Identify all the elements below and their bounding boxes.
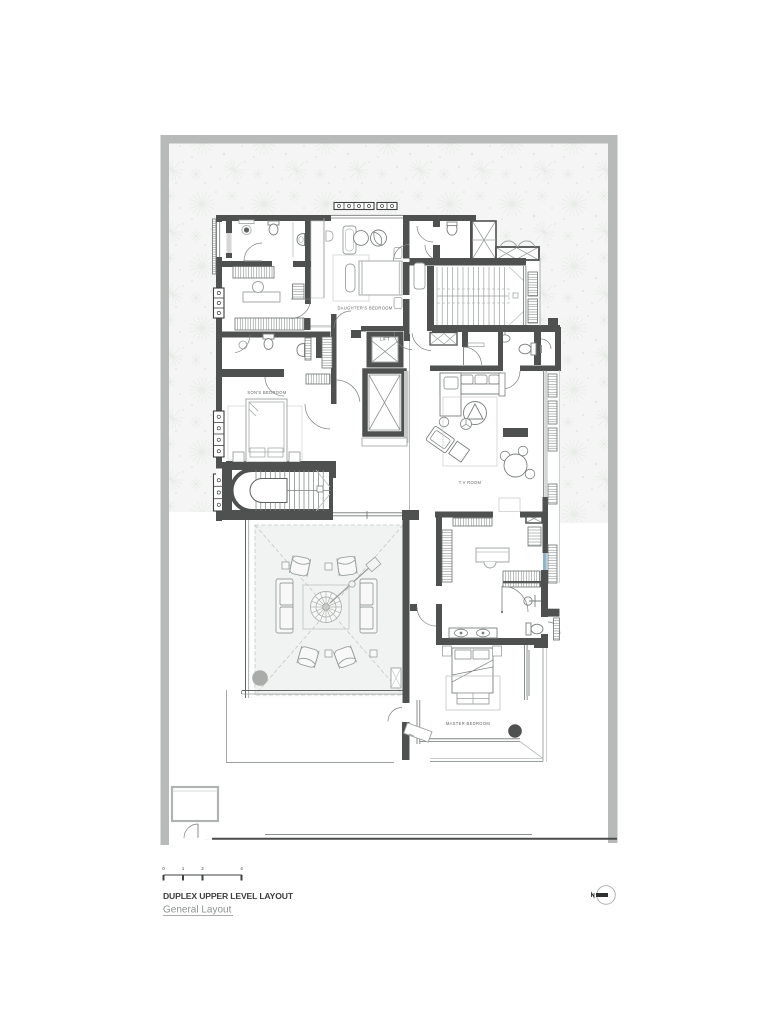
svg-text:DAUGHTER'S BEDROOM: DAUGHTER'S BEDROOM xyxy=(337,306,392,311)
svg-text:SON'S BEDROOM: SON'S BEDROOM xyxy=(247,390,286,395)
svg-text:4: 4 xyxy=(240,866,243,871)
svg-text:General Layout: General Layout xyxy=(163,905,232,916)
svg-text:1: 1 xyxy=(182,866,185,871)
svg-text:LIFT: LIFT xyxy=(380,337,390,342)
svg-text:0: 0 xyxy=(162,866,165,871)
svg-text:T.V ROOM: T.V ROOM xyxy=(459,480,482,485)
svg-text:DUPLEX UPPER LEVEL LAYOUT: DUPLEX UPPER LEVEL LAYOUT xyxy=(163,891,294,901)
svg-text:MASTER BEDROOM: MASTER BEDROOM xyxy=(446,721,490,726)
svg-text:2: 2 xyxy=(201,866,204,871)
